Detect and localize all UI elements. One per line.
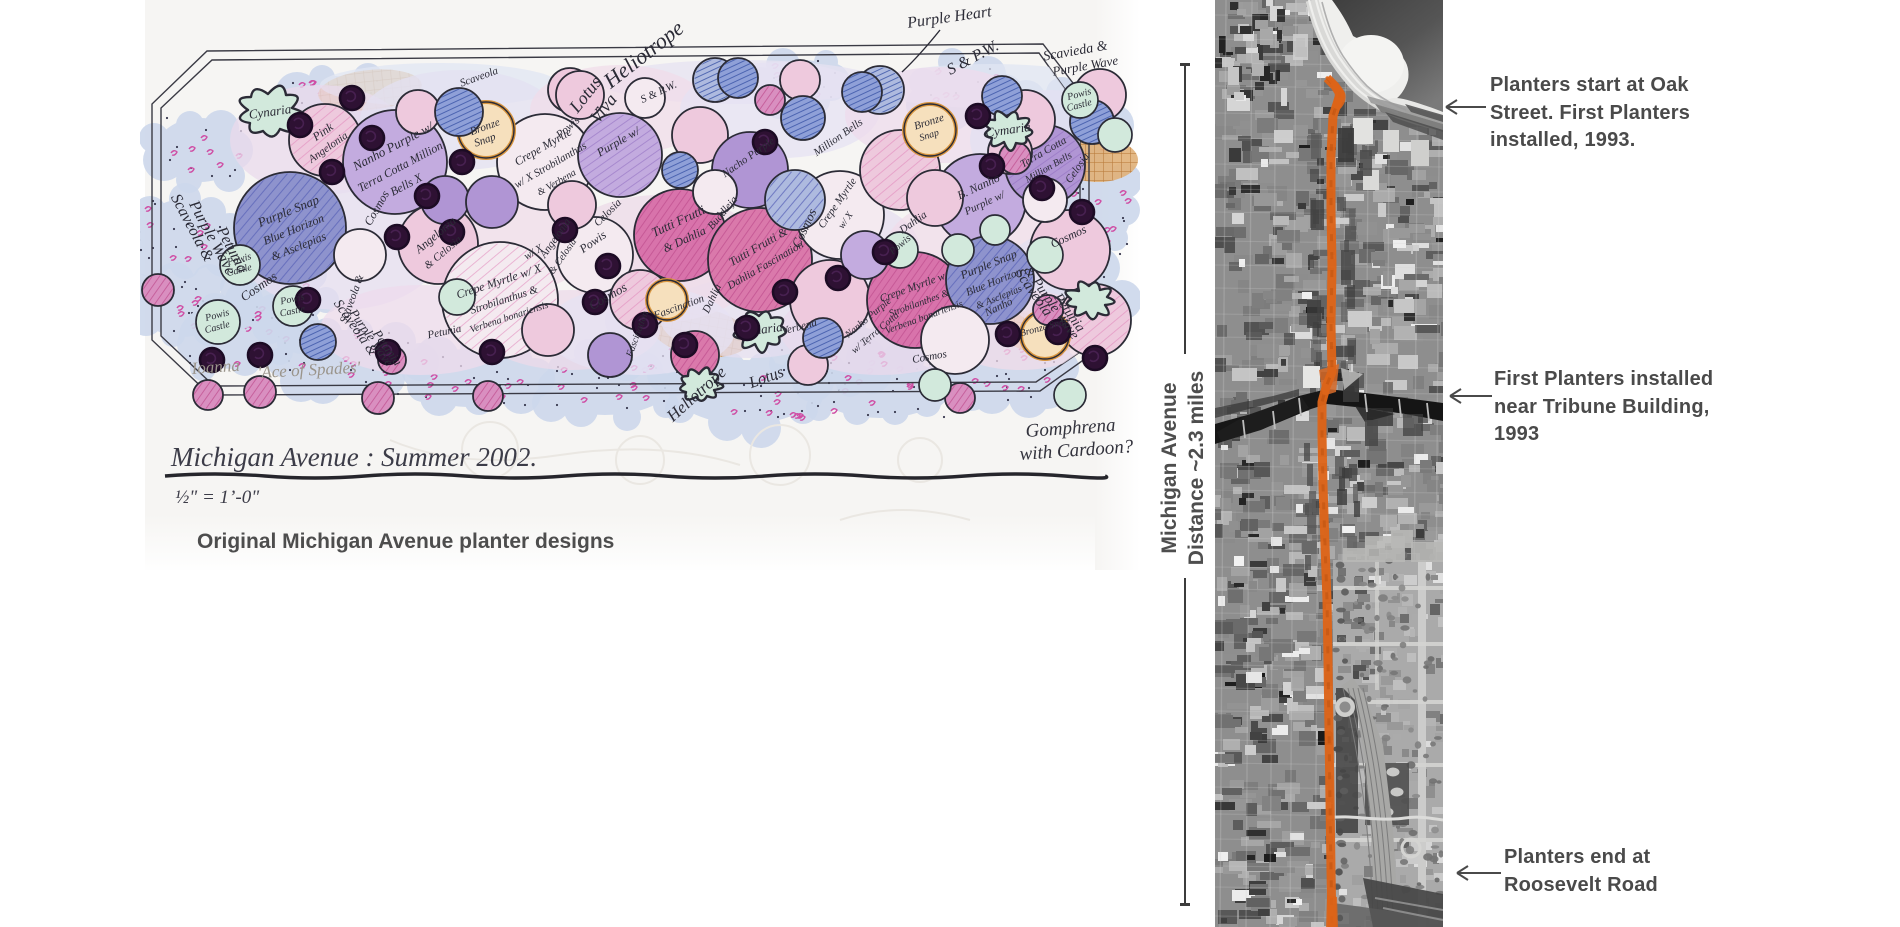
svg-text:Original Michigan Avenue plant: Original Michigan Avenue planter designs <box>197 530 614 553</box>
svg-text:½" = 1’-0": ½" = 1’-0" <box>175 487 260 508</box>
svg-text:Michigan Avenue : Summer 2002.: Michigan Avenue : Summer 2002. <box>170 442 537 472</box>
svg-text:Ioanna: Ioanna <box>190 356 240 378</box>
